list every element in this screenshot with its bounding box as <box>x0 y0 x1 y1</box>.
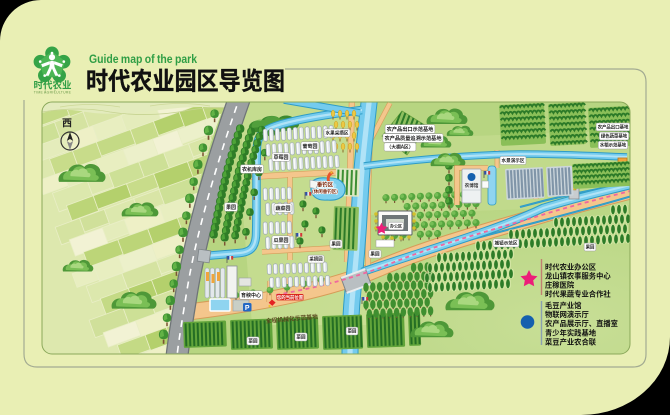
svg-text:菜豆产业农合联: 菜豆产业农合联 <box>545 337 597 347</box>
svg-text:果园: 果园 <box>370 252 380 258</box>
svg-text:菜园: 菜园 <box>296 334 306 341</box>
svg-text:葡萄园: 葡萄园 <box>302 143 317 150</box>
svg-text:时代果蔬专业合作社: 时代果蔬专业合作社 <box>545 290 611 300</box>
svg-text:蔬菜园: 蔬菜园 <box>275 205 290 212</box>
svg-text:农产品出口基地: 农产品出口基地 <box>598 124 629 131</box>
svg-text:绿色蔬菜基地: 绿色蔬菜基地 <box>601 133 628 140</box>
svg-text:城镇示范区: 城镇示范区 <box>495 240 518 247</box>
svg-text:水景演示区: 水景演示区 <box>502 157 525 164</box>
svg-text:草莓园: 草莓园 <box>273 154 288 161</box>
svg-text:果园: 果园 <box>586 245 595 251</box>
svg-text:办公区: 办公区 <box>390 222 402 229</box>
svg-text:TIME AGRICULTURE: TIME AGRICULTURE <box>34 90 72 95</box>
svg-text:（大棚A区）: （大棚A区） <box>386 144 413 151</box>
svg-text:农博馆: 农博馆 <box>465 182 479 189</box>
svg-text:采摘园: 采摘园 <box>309 256 323 263</box>
svg-text:农机库房: 农机库房 <box>242 166 262 173</box>
svg-text:(休闲垂钓区): (休闲垂钓区) <box>312 188 338 195</box>
svg-text:菜园: 菜园 <box>248 338 258 345</box>
svg-text:西: 西 <box>62 115 72 130</box>
svg-text:水稻示范基地: 水稻示范基地 <box>600 142 627 149</box>
svg-text:农产品出口示范基地: 农产品出口示范基地 <box>387 125 435 133</box>
svg-text:水果采摘区: 水果采摘区 <box>326 130 349 137</box>
svg-text:您的当前位置: 您的当前位置 <box>277 294 304 301</box>
svg-text:育秧中心: 育秧中心 <box>241 292 261 299</box>
svg-text:果园: 果园 <box>226 204 236 211</box>
svg-text:垂钓区: 垂钓区 <box>317 181 334 189</box>
svg-text:果园: 果园 <box>331 242 341 248</box>
svg-text:农产品质量追溯示范基地: 农产品质量追溯示范基地 <box>384 134 442 142</box>
svg-text:P: P <box>245 303 250 313</box>
svg-text:瓜果园: 瓜果园 <box>273 237 288 244</box>
svg-text:菜园: 菜园 <box>348 328 357 335</box>
svg-text:时代农业园区导览图: 时代农业园区导览图 <box>86 63 285 98</box>
